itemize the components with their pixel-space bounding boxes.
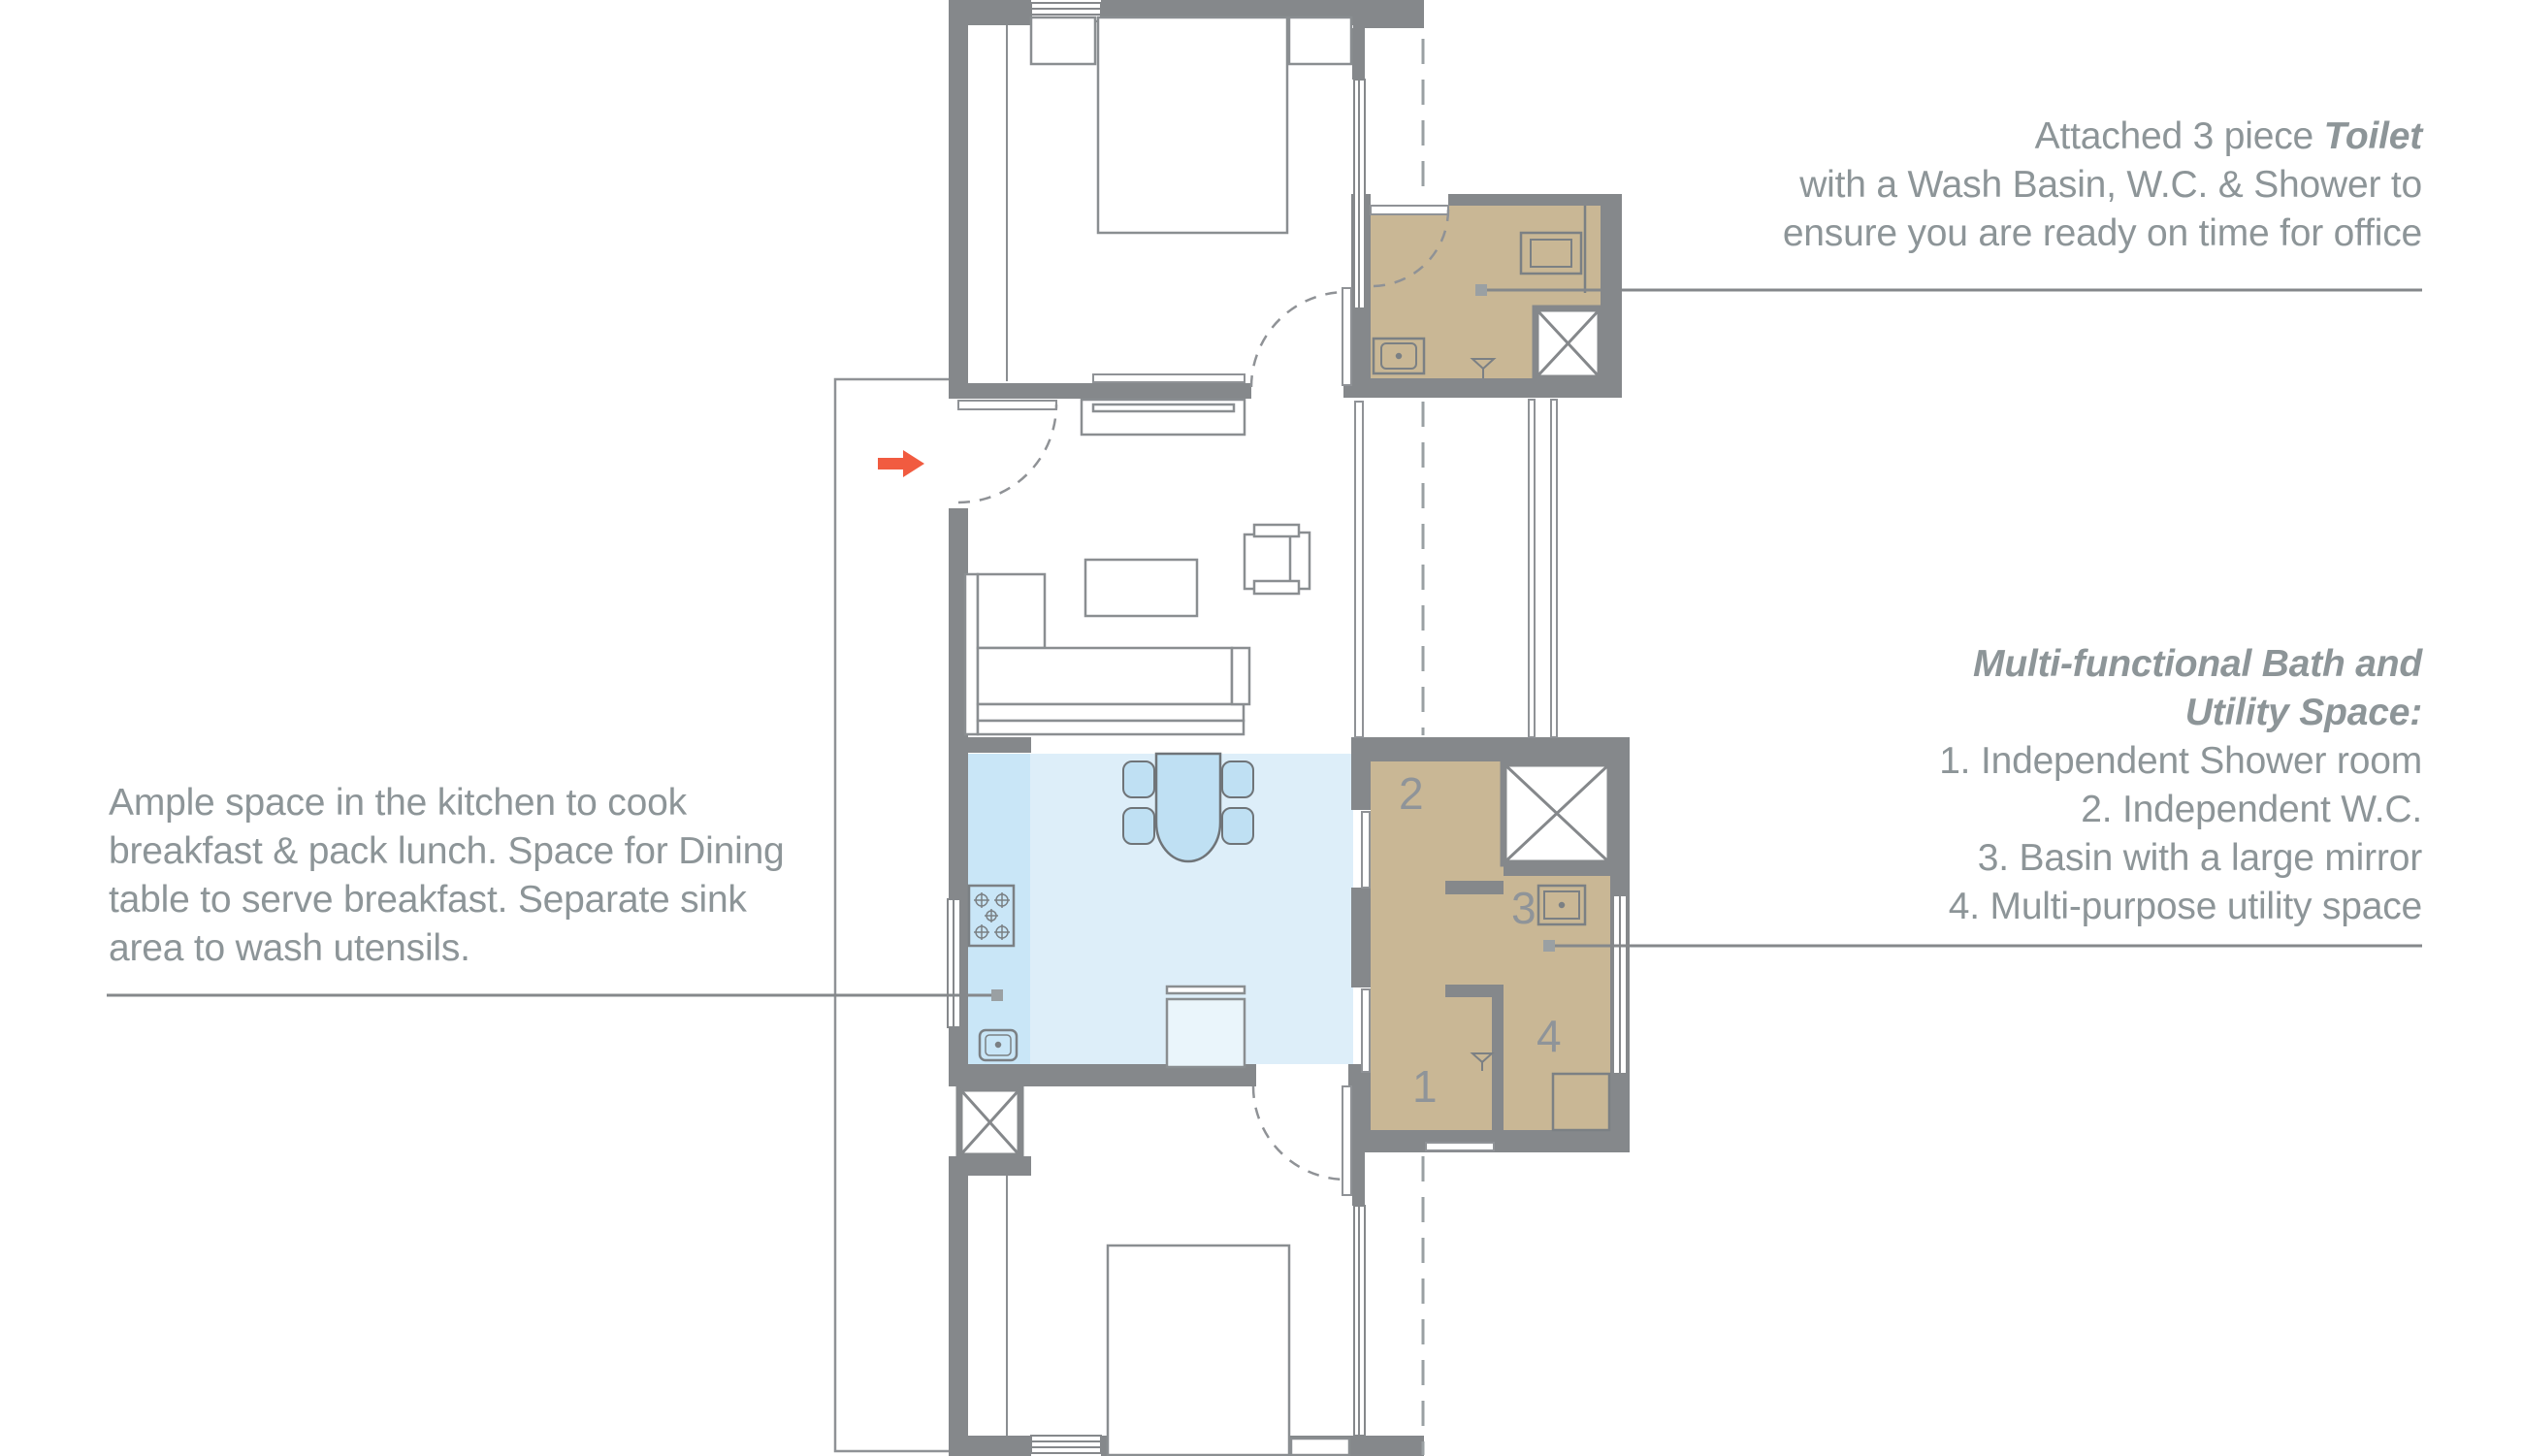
coffee-table bbox=[1085, 560, 1197, 616]
bedside-table-1b bbox=[1289, 17, 1351, 64]
room-number-shower: 1 bbox=[1412, 1061, 1438, 1112]
kitchen-annotation-line3: table to serve breakfast. Separate sink bbox=[109, 876, 865, 924]
bath-utility-annotation: Multi-functional Bath and Utility Space:… bbox=[1549, 640, 2422, 931]
bath-annotation-item3: 3. Basin with a large mirror bbox=[1549, 834, 2422, 883]
armchair bbox=[1245, 525, 1310, 594]
duct-rail-1 bbox=[1529, 400, 1535, 737]
bed-1 bbox=[1098, 17, 1287, 233]
furniture bbox=[965, 17, 1351, 1455]
bed-2 bbox=[1108, 1246, 1289, 1455]
toilet-door-leaf bbox=[1371, 206, 1448, 214]
dining-table bbox=[1156, 754, 1220, 861]
tv-console bbox=[1082, 400, 1245, 435]
bedroom1-door-leaf bbox=[1342, 288, 1351, 385]
toilet-annotation-line2: with a Wash Basin, W.C. & Shower to bbox=[1549, 161, 2422, 210]
entry-arrow-icon bbox=[878, 450, 924, 477]
entry-door-arc bbox=[958, 404, 1056, 502]
bedside-table-2 bbox=[1291, 1439, 1349, 1455]
kitchen-annotation-line2: breakfast & pack lunch. Space for Dining bbox=[109, 827, 865, 876]
fridge-cabinet bbox=[1167, 987, 1245, 1067]
window-bedroom2-right bbox=[1354, 1206, 1365, 1436]
bath-annotation-item1: 1. Independent Shower room bbox=[1549, 737, 2422, 786]
bedroom2-door-leaf bbox=[1342, 1086, 1351, 1195]
room-number-utility: 4 bbox=[1536, 1011, 1562, 1061]
room-number-wc: 2 bbox=[1399, 768, 1424, 819]
shaft-kitchen bbox=[959, 1088, 1020, 1156]
bath-annotation-title2: Utility Space: bbox=[1549, 689, 2422, 737]
bedroom2-door-arc bbox=[1253, 1086, 1346, 1180]
utility-wc-door-leaf bbox=[1362, 812, 1370, 888]
bath-annotation-item4: 4. Multi-purpose utility space bbox=[1549, 883, 2422, 931]
window-bottom bbox=[1031, 1436, 1101, 1453]
floor-plan-canvas: 2 3 4 1 Attached 3 piece Toilet with a W… bbox=[0, 0, 2523, 1456]
bedside-table-1a bbox=[1031, 17, 1095, 64]
bedroom1-door-arc bbox=[1251, 292, 1346, 387]
living-right-rail bbox=[1355, 402, 1363, 737]
utility-shower-door-leaf bbox=[1362, 989, 1370, 1072]
kitchen-annotation-line1: Ample space in the kitchen to cook bbox=[109, 779, 865, 827]
toilet-annotation-line3: ensure you are ready on time for office bbox=[1549, 210, 2422, 258]
kitchen-leader-marker bbox=[991, 989, 1003, 1001]
utility-leader-marker bbox=[1543, 940, 1555, 952]
toilet-annotation-line1: Attached 3 piece Toilet bbox=[1549, 113, 2422, 161]
toilet-annotation: Attached 3 piece Toilet with a Wash Basi… bbox=[1549, 113, 2422, 258]
kitchen-annotation: Ample space in the kitchen to cook break… bbox=[109, 779, 865, 973]
window-kitchen-left bbox=[948, 899, 960, 1027]
utility-threshold bbox=[1426, 1143, 1494, 1150]
entry-door-leaf bbox=[958, 401, 1056, 409]
window-bedroom1-right bbox=[1354, 80, 1365, 308]
bath-annotation-title1: Multi-functional Bath and bbox=[1549, 640, 2422, 689]
sliding-panel bbox=[1093, 374, 1245, 382]
room-number-basin: 3 bbox=[1511, 883, 1536, 933]
shaft-toilet bbox=[1536, 308, 1601, 378]
kitchen-annotation-line4: area to wash utensils. bbox=[109, 924, 865, 973]
bath-annotation-item2: 2. Independent W.C. bbox=[1549, 786, 2422, 834]
toilet-leader-marker bbox=[1475, 284, 1487, 296]
